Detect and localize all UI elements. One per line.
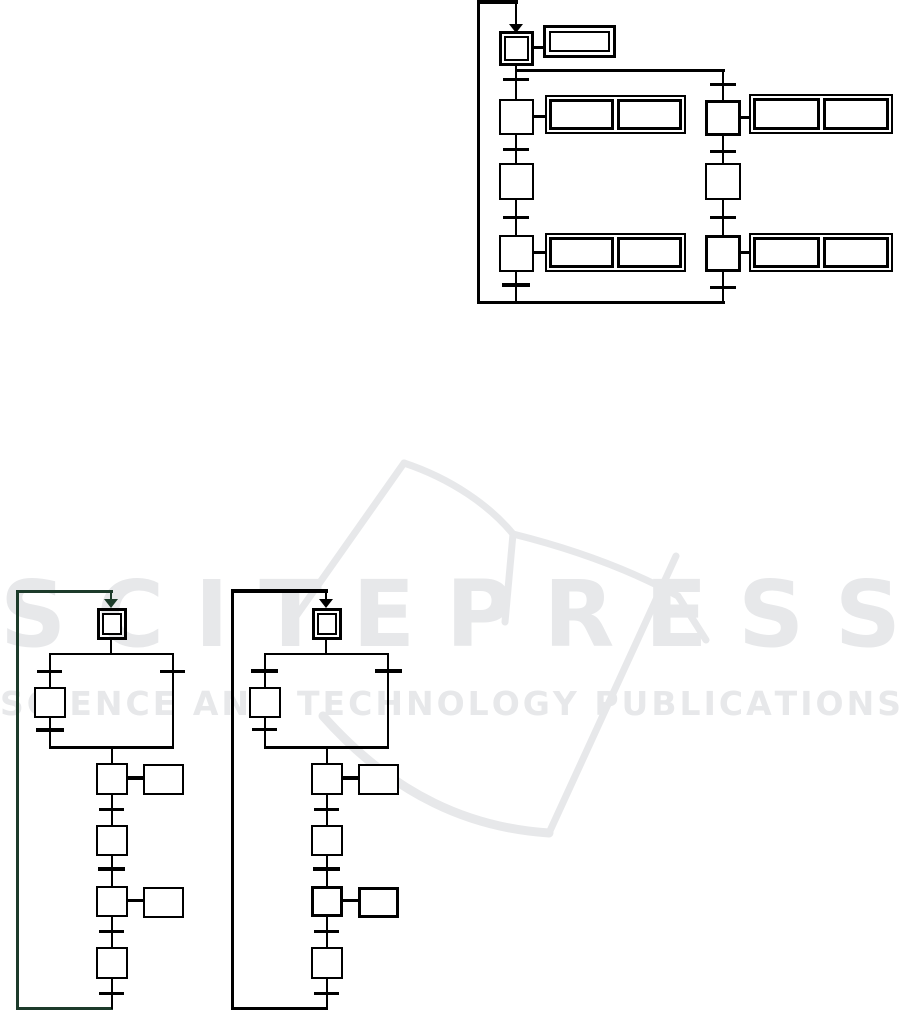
action-block <box>545 233 686 272</box>
action-block <box>543 25 616 58</box>
action-block <box>749 94 893 134</box>
flow-line <box>172 655 174 748</box>
loop-feedback-line <box>16 590 19 1010</box>
transition <box>314 930 339 933</box>
book-spine-icon <box>505 534 513 622</box>
step <box>249 687 281 718</box>
flow-line <box>264 718 266 748</box>
step <box>499 235 534 272</box>
loop-feedback-line <box>16 1007 113 1010</box>
branch-divergence-line <box>515 69 725 72</box>
step <box>499 163 534 200</box>
arrow-down-icon <box>104 599 118 608</box>
action-box <box>358 764 399 795</box>
initial-step <box>102 613 122 635</box>
arrow-down-icon <box>319 599 333 608</box>
flow-line <box>326 748 328 763</box>
action-box <box>358 887 399 918</box>
transition <box>37 670 62 673</box>
action-box <box>143 887 184 918</box>
step-action-link <box>128 899 143 902</box>
initial-step <box>317 613 337 635</box>
transition <box>502 283 530 287</box>
branch-divergence-line <box>49 653 174 655</box>
step <box>96 763 128 795</box>
book-right-page-edge-icon <box>513 534 706 640</box>
action-block <box>749 233 893 272</box>
step <box>96 825 128 856</box>
transition <box>710 286 736 289</box>
action-cell <box>753 98 820 130</box>
transition <box>710 216 736 219</box>
step-action-link <box>128 776 143 780</box>
step-action-link <box>741 251 749 254</box>
step <box>705 163 741 200</box>
transition <box>160 670 185 673</box>
step <box>96 947 128 979</box>
transition <box>503 216 529 219</box>
action-cell <box>549 99 614 130</box>
initial-step <box>504 36 529 61</box>
paper-figure-page: SCITEPRESS SCIENCE AND TECHNOLOGY PUBLIC… <box>0 0 901 1012</box>
action-cell <box>617 237 682 268</box>
action-cell <box>549 31 610 52</box>
step-action-link <box>534 251 545 254</box>
action-cell <box>549 237 614 268</box>
ribbon-swoosh-icon <box>323 716 549 833</box>
transition <box>710 83 736 86</box>
step <box>499 99 534 135</box>
step <box>311 825 343 856</box>
action-cell <box>753 237 820 268</box>
book-left-page-edge-icon <box>292 463 404 622</box>
flow-line <box>515 272 517 304</box>
step <box>96 886 128 917</box>
transition <box>98 867 125 871</box>
transition <box>99 992 124 995</box>
action-block <box>545 95 686 134</box>
action-box <box>143 764 184 795</box>
step <box>311 886 343 917</box>
step-action-link <box>343 899 358 902</box>
transition <box>251 669 278 673</box>
action-cell <box>823 237 890 268</box>
step <box>311 763 343 795</box>
transition <box>313 867 340 871</box>
transition <box>503 78 529 81</box>
loop-feedback-line <box>477 0 518 4</box>
flow-line <box>515 72 517 99</box>
flow-line <box>111 748 113 763</box>
loop-feedback-line <box>231 589 328 593</box>
flow-line <box>722 72 724 100</box>
loop-feedback-line <box>231 1007 328 1010</box>
transition <box>503 148 529 151</box>
step <box>311 947 343 979</box>
pen-shaft-icon <box>549 556 676 833</box>
transition <box>314 808 339 811</box>
step <box>705 100 741 136</box>
book-left-page-ridge-icon <box>404 463 513 534</box>
flow-line <box>111 856 113 886</box>
transition <box>710 150 736 153</box>
step-action-link <box>534 115 545 118</box>
transition <box>99 930 124 933</box>
step-action-link <box>534 46 543 49</box>
transition <box>99 808 124 811</box>
loop-feedback-line <box>231 589 234 1010</box>
step <box>34 687 66 718</box>
step-action-link <box>343 776 358 780</box>
step <box>705 235 741 272</box>
flow-line <box>326 856 328 886</box>
action-cell <box>617 99 682 130</box>
flow-line <box>49 718 51 748</box>
loop-feedback-line <box>16 590 113 593</box>
transition <box>314 992 339 995</box>
step-action-link <box>741 116 749 119</box>
branch-divergence-line <box>264 653 389 655</box>
loop-feedback-line <box>477 0 480 304</box>
transition <box>375 669 402 673</box>
arrow-down-icon <box>509 24 523 33</box>
action-cell <box>823 98 890 130</box>
scitepress-logo-watermark <box>0 0 901 1012</box>
